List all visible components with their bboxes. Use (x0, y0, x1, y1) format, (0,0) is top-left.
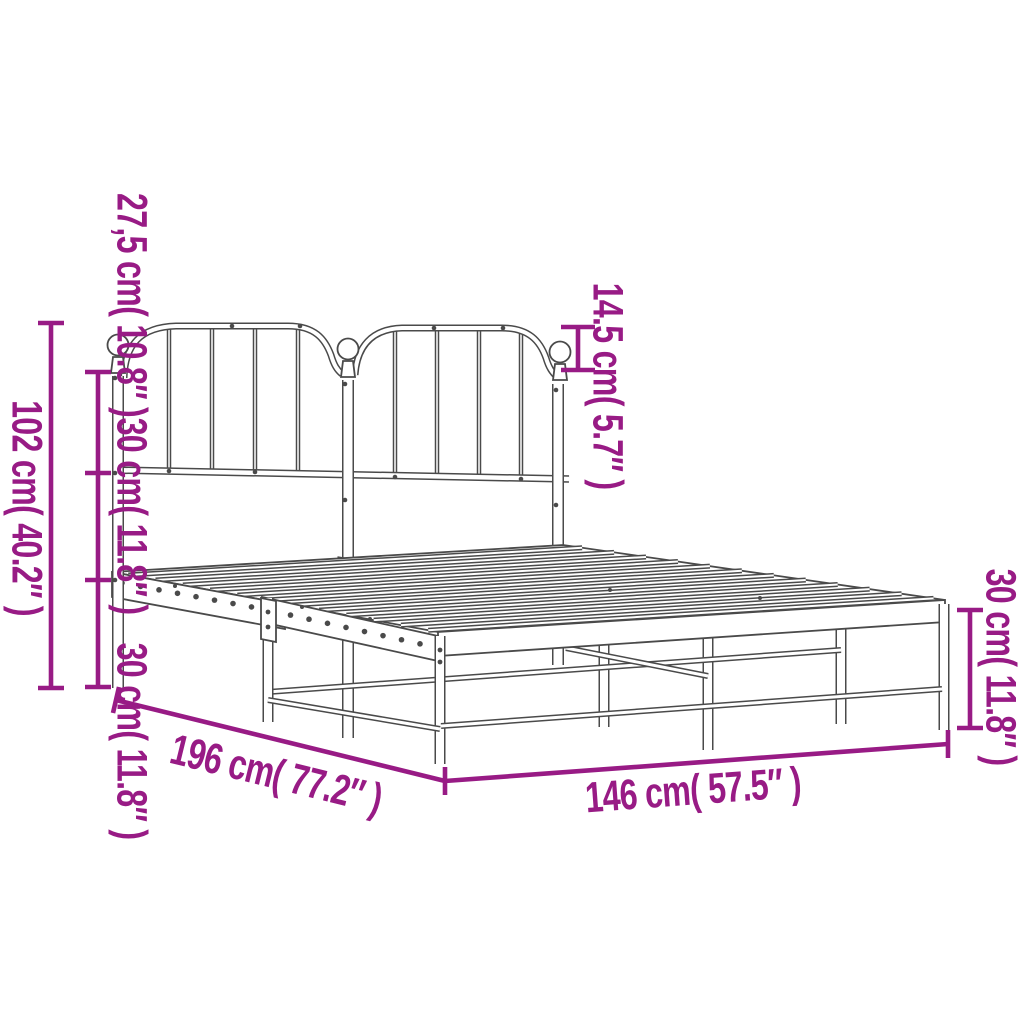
bed-frame-drawing (108, 324, 949, 764)
product-dimension-diagram: 27,5 cm( 10.8″ ) 30 cm( 11.8″ ) 30 cm( 1… (0, 0, 1024, 1024)
dim-label-headboard-lower-segment: 30 cm( 11.8″ ) (107, 643, 156, 840)
dim-label-headboard-total-height: 102 cm( 40.2″ ) (2, 400, 51, 616)
dim-label-finial-height: 14.5 cm( 5.7″ ) (583, 283, 632, 490)
dim-label-headboard-upper-segment: 30 cm( 11.8″ ) (107, 418, 156, 615)
dim-label-leg-height: 30 cm( 11.8″ ) (976, 569, 1024, 766)
dim-label-headboard-top-segment: 27,5 cm( 10.8″ ) (107, 193, 156, 417)
